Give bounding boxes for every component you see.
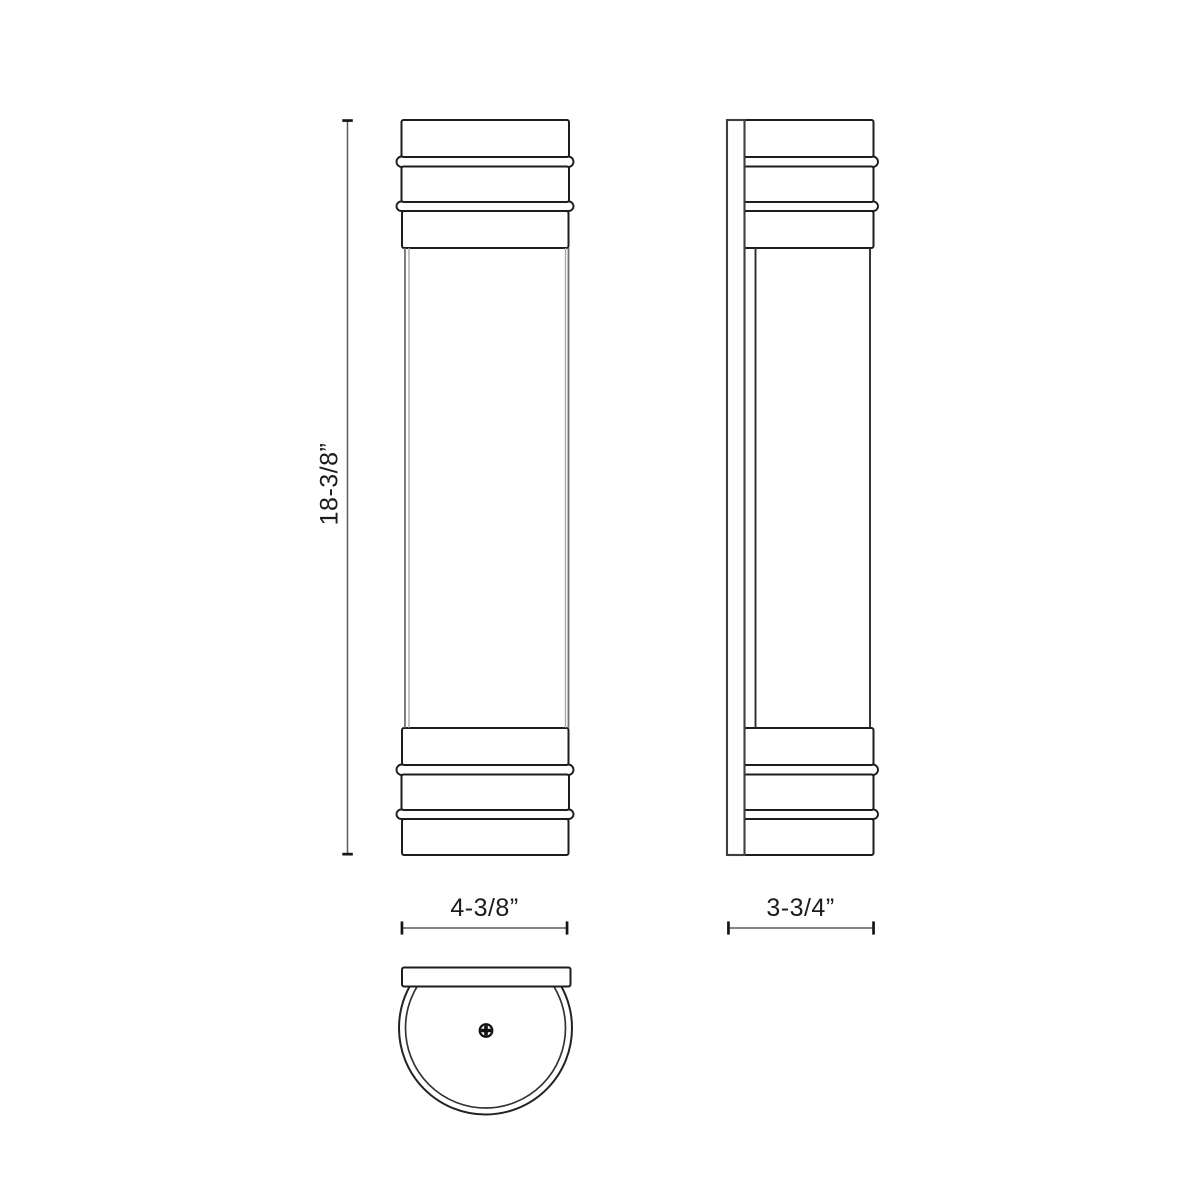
bottom-view: [399, 942, 572, 1115]
depth-dimension-label: 3-3/4”: [766, 894, 834, 922]
side-bottom-collar: [744, 728, 874, 765]
dimension-drawing: 18-3/8” 4-3/8” 3-3/4”: [0, 0, 1200, 1200]
depth-dimension-tick-left: [727, 921, 730, 934]
height-dimension-tick-top: [342, 119, 353, 122]
bottom-mounting-plate: [402, 968, 571, 987]
side-top-collar: [744, 211, 874, 248]
side-ring-top-1: [735, 157, 878, 168]
depth-dimension-tick-right: [872, 921, 875, 934]
side-ring-bottom-1: [735, 765, 878, 776]
front-ring-top-1: [397, 157, 574, 168]
width-dimension: 4-3/8”: [401, 894, 569, 935]
depth-dimension: 3-3/4”: [727, 894, 875, 935]
side-mounting-plate: [727, 120, 745, 855]
front-bottom-band: [402, 775, 570, 811]
technical-drawing-canvas: 18-3/8” 4-3/8” 3-3/4”: [0, 0, 1200, 1200]
height-dimension-label: 18-3/8”: [316, 443, 344, 526]
side-bottom-band: [744, 775, 874, 811]
side-top-band: [744, 167, 874, 203]
side-view: [727, 120, 878, 855]
front-top-cap: [402, 120, 570, 157]
side-bottom-cap: [744, 819, 874, 855]
front-top-collar: [402, 211, 569, 248]
height-dimension: 18-3/8”: [316, 119, 353, 855]
height-dimension-tick-bottom: [342, 853, 353, 856]
front-ring-bottom-1: [397, 765, 574, 776]
width-dimension-tick-right: [566, 921, 569, 934]
side-top-cap: [744, 120, 874, 157]
width-dimension-tick-left: [401, 921, 404, 934]
front-bottom-cap: [402, 819, 569, 855]
front-top-band: [402, 167, 570, 203]
width-dimension-label: 4-3/8”: [450, 894, 518, 922]
front-bottom-collar: [402, 728, 569, 765]
front-view: [397, 120, 574, 855]
phillips-screw-icon: [480, 1024, 493, 1037]
